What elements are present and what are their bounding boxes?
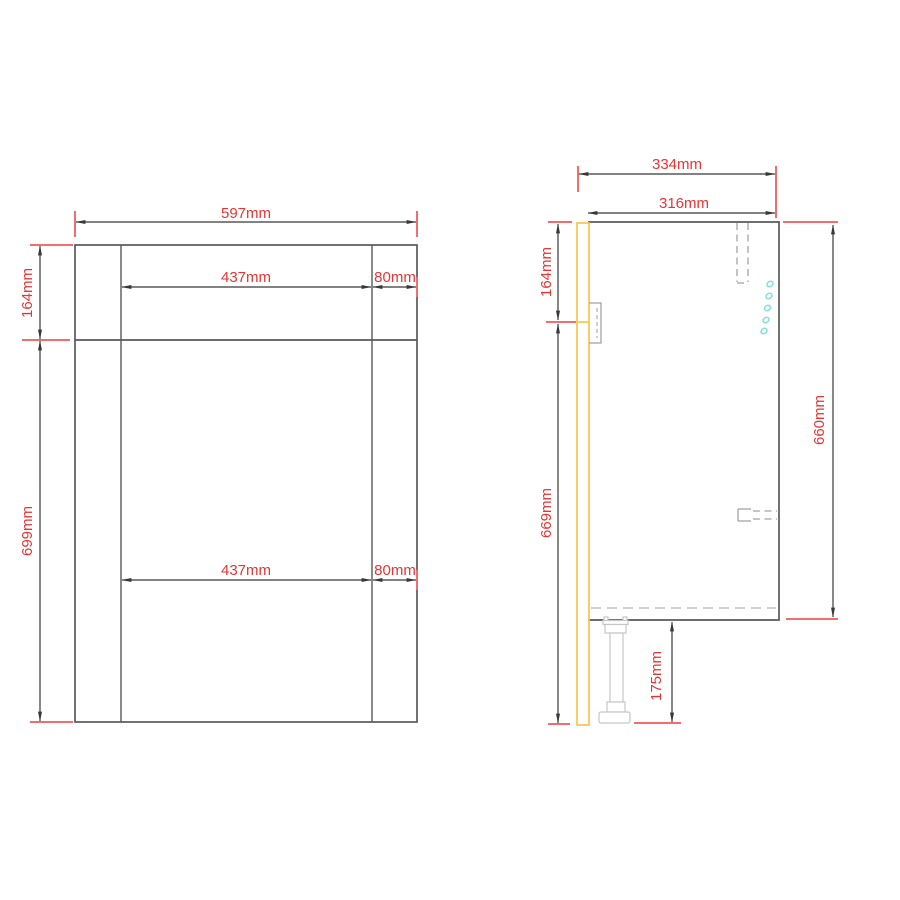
side-top-bracket-hidden-slot <box>737 223 748 283</box>
dimension-label: 437mm <box>221 562 271 579</box>
leg-flange <box>605 625 626 634</box>
cabinet-dimension-drawing: 597mm 437mm 80mm 164mm 699mm 437mm <box>0 0 900 900</box>
fitting-hole <box>760 327 768 335</box>
fitting-hole <box>762 316 770 324</box>
hinge-plate-outline <box>589 303 601 343</box>
dimension-label: 80mm <box>374 562 416 579</box>
side-dim-leg-height: 175mm <box>634 622 681 723</box>
fitting-hole <box>763 304 771 312</box>
front-dim-fascia-height: 164mm <box>19 245 73 340</box>
fitting-hole <box>766 280 774 288</box>
front-view: 597mm 437mm 80mm 164mm 699mm 437mm <box>19 205 417 722</box>
leg-foot <box>599 712 630 723</box>
side-dim-carcass-height: 660mm <box>783 222 838 619</box>
dimension-label: 164mm <box>19 268 36 318</box>
technical-drawing-canvas: 597mm 437mm 80mm 164mm 699mm 437mm <box>0 0 900 900</box>
dimension-label: 597mm <box>221 205 271 222</box>
side-hinge-plate <box>589 303 601 343</box>
fitting-hole <box>765 292 773 300</box>
dimension-label: 699mm <box>19 506 36 556</box>
dimension-label: 660mm <box>811 395 828 445</box>
side-view: 334mm 316mm 164mm 669mm 660mm <box>538 156 838 725</box>
dimension-label: 175mm <box>648 651 665 701</box>
dimension-label: 437mm <box>221 269 271 286</box>
side-cabinet-leg <box>599 617 630 723</box>
dimension-label: 669mm <box>538 488 555 538</box>
leg-column <box>610 633 623 702</box>
side-mid-bracket-slot <box>738 509 777 521</box>
side-dim-fascia-height: 164mm <box>538 222 576 322</box>
front-cabinet-outline <box>75 245 417 722</box>
front-dim-door-height: 699mm <box>19 341 73 722</box>
side-door-panel <box>577 223 589 725</box>
side-dim-carcass-depth: 316mm <box>588 195 775 213</box>
side-fitting-holes <box>760 280 774 335</box>
dimension-label: 334mm <box>652 156 702 173</box>
leg-collar <box>607 702 625 712</box>
side-dim-front-drop-height: 669mm <box>538 324 570 724</box>
front-dim-overall-width: 597mm <box>75 205 417 237</box>
dimension-label: 316mm <box>659 195 709 212</box>
dimension-label: 80mm <box>374 269 416 286</box>
side-carcass-outline <box>588 222 779 620</box>
dimension-label: 164mm <box>538 247 555 297</box>
